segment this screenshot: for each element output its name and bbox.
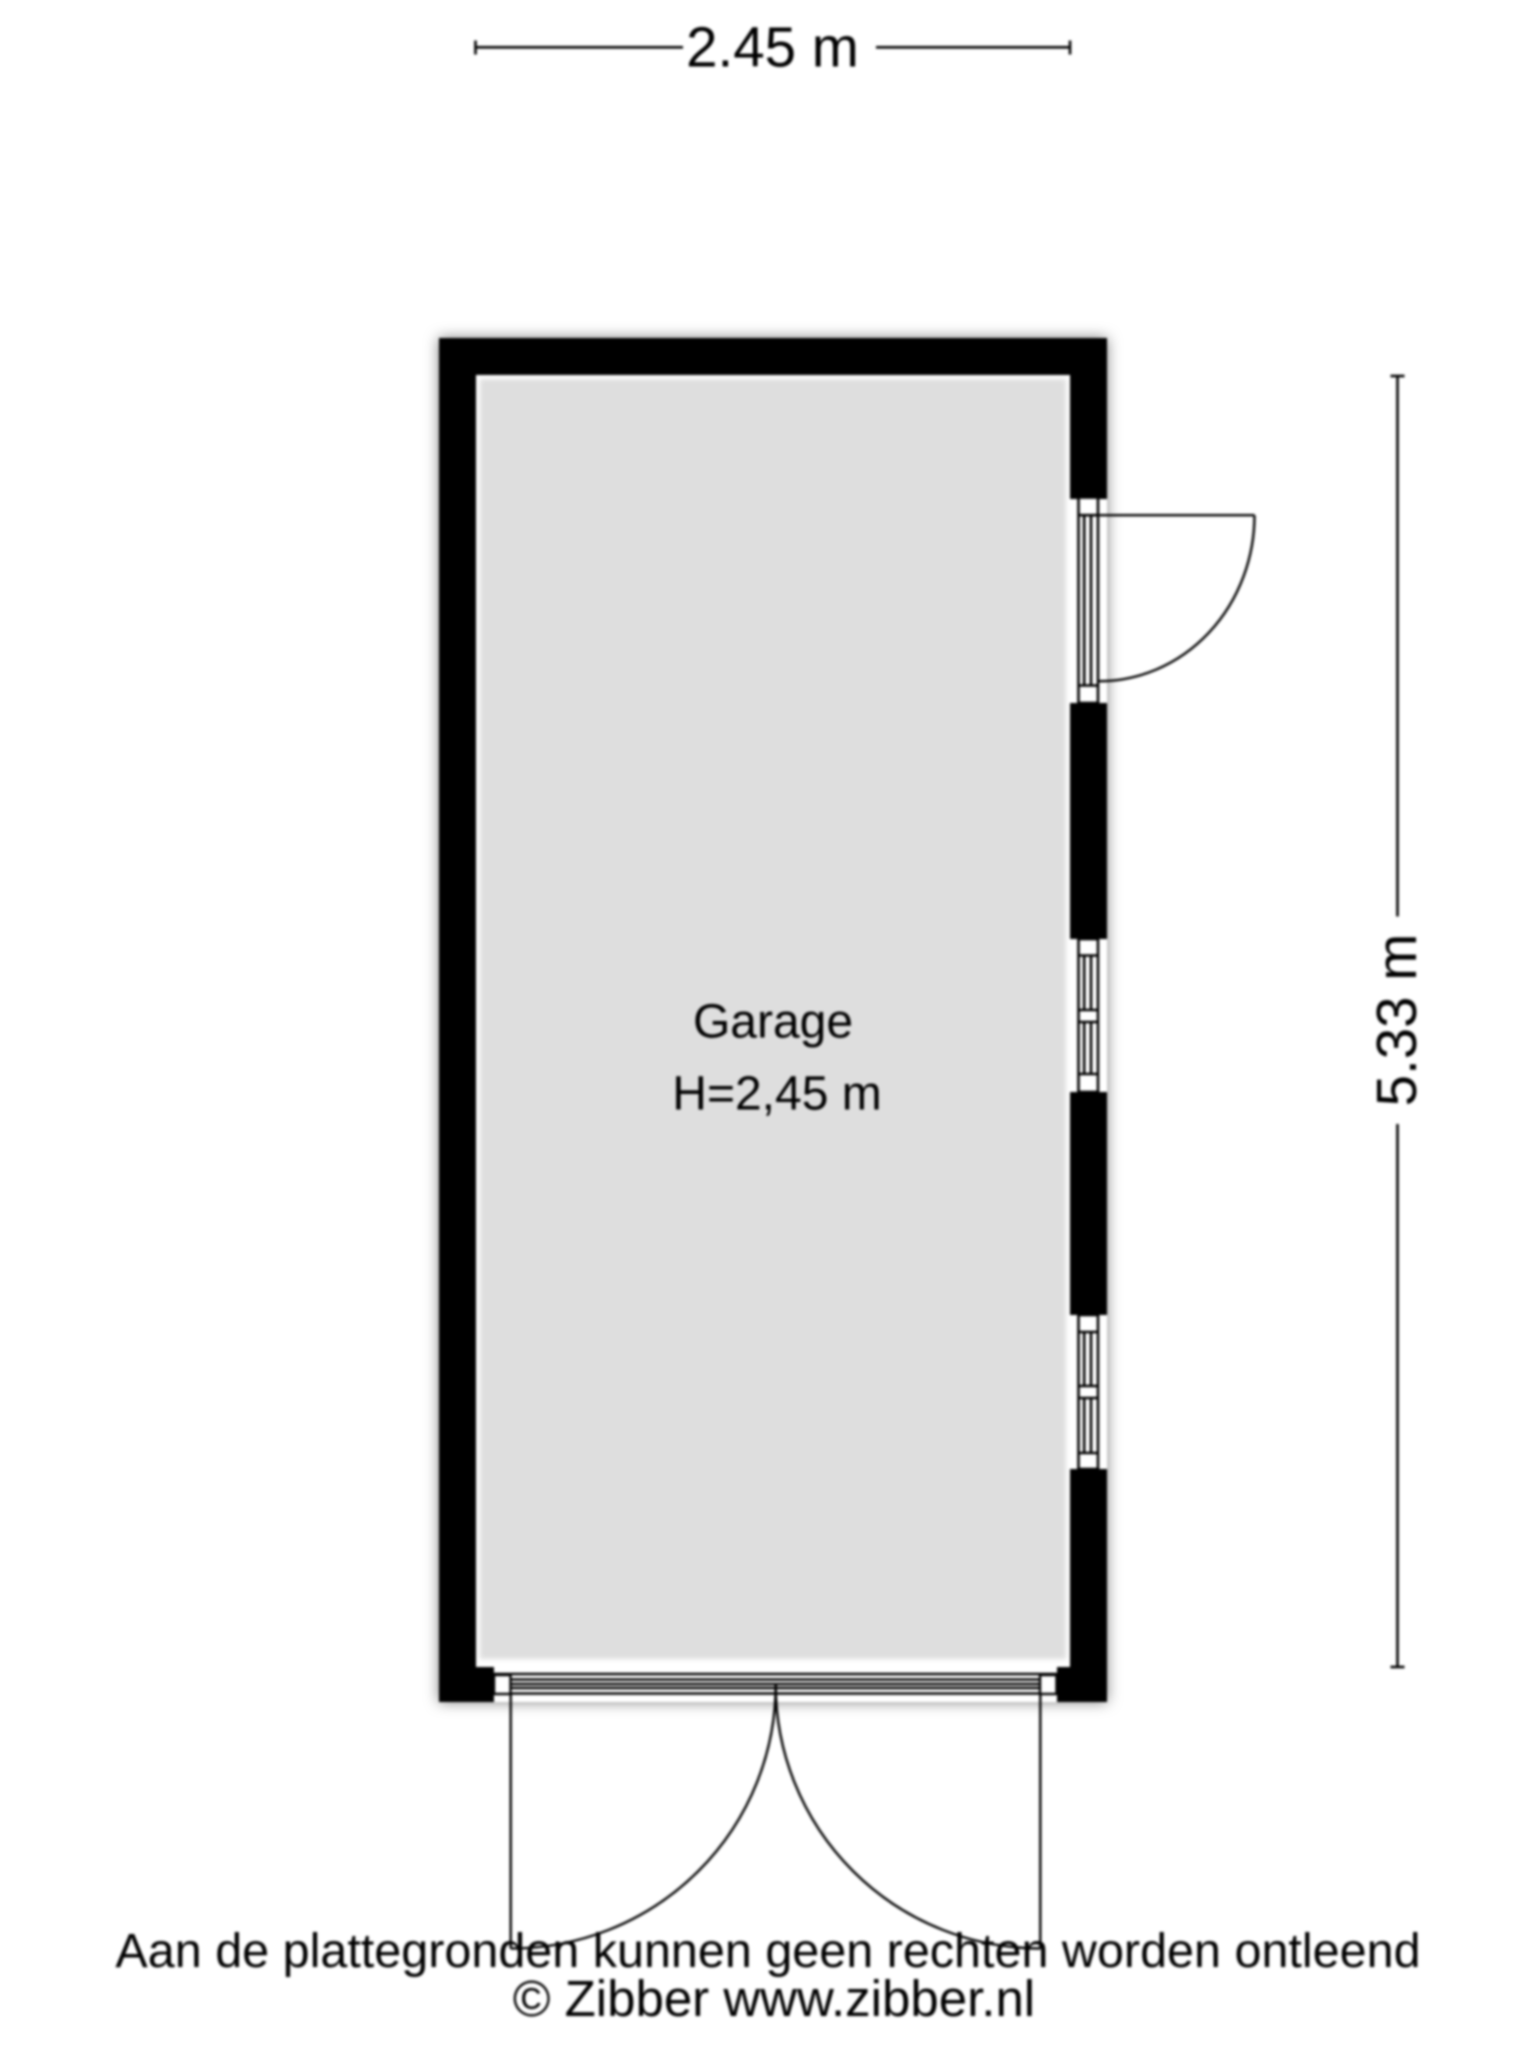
svg-text:2.45 m: 2.45 m [686, 16, 859, 79]
svg-text:H=2,45 m: H=2,45 m [672, 1068, 881, 1121]
svg-text:5.33 m: 5.33 m [1365, 934, 1428, 1107]
svg-text:© Zibber www.zibber.nl: © Zibber www.zibber.nl [513, 1970, 1035, 2027]
svg-text:Garage: Garage [693, 996, 853, 1049]
